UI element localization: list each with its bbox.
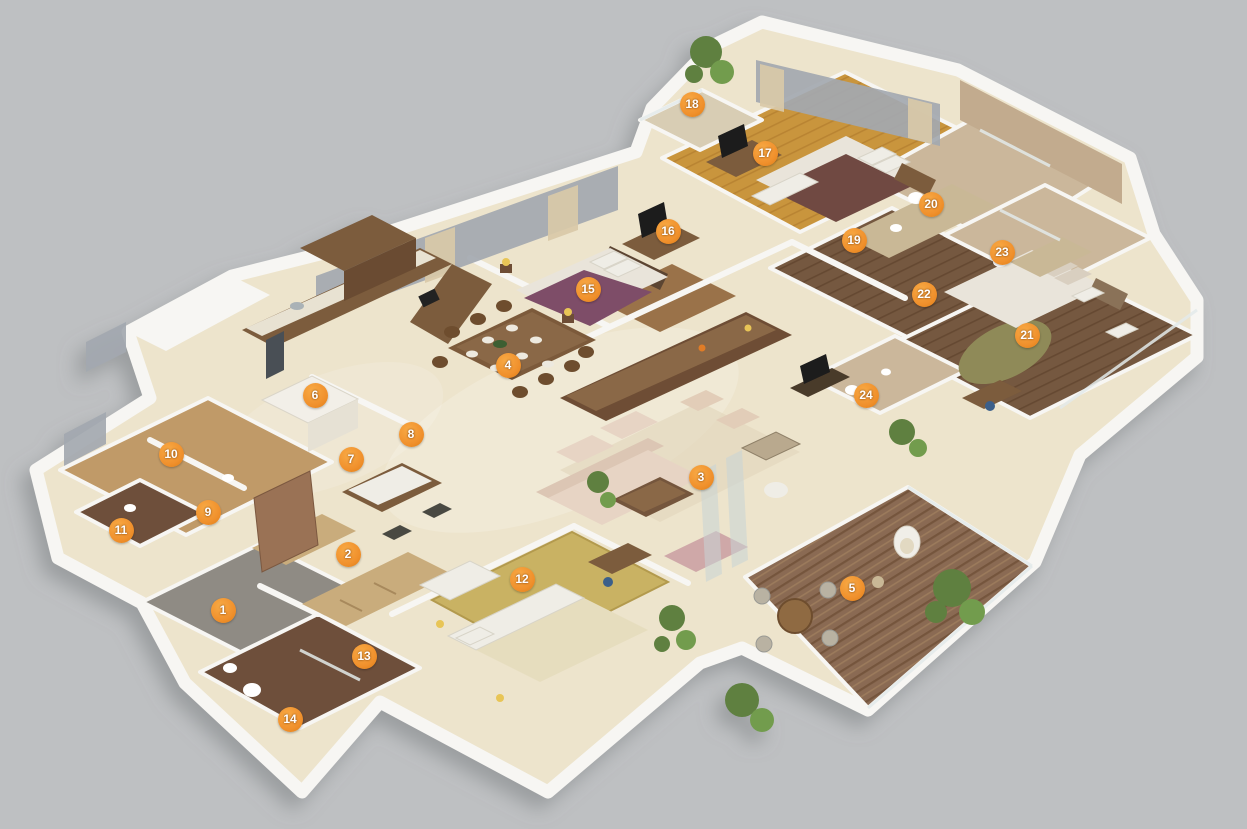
room-marker-10[interactable]: 10 <box>159 442 184 467</box>
room-marker-1[interactable]: 1 <box>211 598 236 623</box>
marker-layer: 123456789101112131415161718192021222324 <box>0 0 1247 829</box>
room-marker-8[interactable]: 8 <box>399 422 424 447</box>
room-marker-9[interactable]: 9 <box>196 500 221 525</box>
room-marker-16[interactable]: 16 <box>656 219 681 244</box>
room-marker-22[interactable]: 22 <box>912 282 937 307</box>
room-marker-19[interactable]: 19 <box>842 228 867 253</box>
room-marker-4[interactable]: 4 <box>496 353 521 378</box>
room-marker-14[interactable]: 14 <box>278 707 303 732</box>
room-marker-17[interactable]: 17 <box>753 141 778 166</box>
room-marker-15[interactable]: 15 <box>576 277 601 302</box>
room-marker-3[interactable]: 3 <box>689 465 714 490</box>
floor-plan-scene: 123456789101112131415161718192021222324 <box>0 0 1247 829</box>
room-marker-7[interactable]: 7 <box>339 447 364 472</box>
room-marker-23[interactable]: 23 <box>990 240 1015 265</box>
room-marker-13[interactable]: 13 <box>352 644 377 669</box>
room-marker-20[interactable]: 20 <box>919 192 944 217</box>
room-marker-21[interactable]: 21 <box>1015 323 1040 348</box>
room-marker-24[interactable]: 24 <box>854 383 879 408</box>
room-marker-5[interactable]: 5 <box>840 576 865 601</box>
room-marker-6[interactable]: 6 <box>303 383 328 408</box>
room-marker-11[interactable]: 11 <box>109 518 134 543</box>
room-marker-12[interactable]: 12 <box>510 567 535 592</box>
room-marker-18[interactable]: 18 <box>680 92 705 117</box>
room-marker-2[interactable]: 2 <box>336 542 361 567</box>
